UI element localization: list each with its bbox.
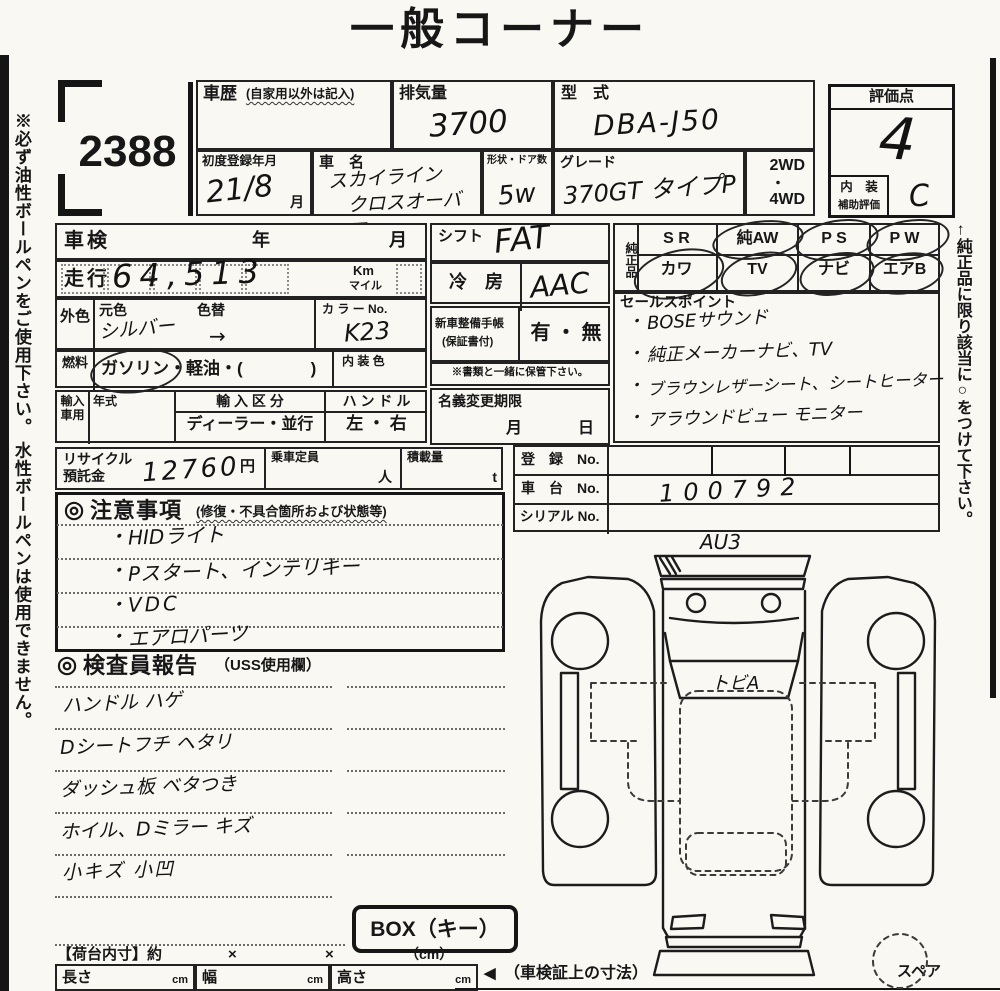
displacement-label: 排気量 (399, 85, 447, 103)
cautions-label: 注意事項 (90, 499, 182, 523)
shift-label: シフト (438, 229, 483, 246)
grade-value: 370GT タイプP (562, 172, 737, 209)
rear-hatch-dashed (686, 833, 786, 875)
height-unit: cm (455, 974, 471, 986)
front-damage-note: AU3 (698, 533, 741, 554)
width-unit: cm (307, 974, 323, 986)
right-margin-note: ←純正品に限り該当に○をつけて下さい。 (953, 222, 970, 542)
keep-note: ※書類と一緒に保管下さい。 (432, 364, 608, 379)
import-label: 輸入車用 (57, 392, 90, 444)
sales-point-item: BOSEサウンド (647, 309, 769, 334)
chassis-no-label: 車 台 No. (521, 481, 600, 496)
tail-light (671, 915, 705, 929)
handle-label: ハ ン ド ル (326, 392, 427, 413)
front-cowl (661, 579, 805, 589)
import-class-label: 輸 入 区 分 (176, 392, 324, 413)
washer-nozzle (762, 594, 780, 612)
dotted-rule (55, 770, 332, 772)
score-value: 4 (877, 108, 918, 171)
dotted-rule (347, 728, 505, 730)
cargo-unit: （cm） (405, 947, 453, 962)
capacity-label: 乗車定員 (271, 451, 319, 464)
interior-color-label: 内 装 色 (342, 355, 385, 368)
interior-sublabel: 補助評価 (831, 200, 887, 212)
sales-point-item: 純正メーカーナビ、TV (647, 341, 833, 366)
ac-cell: 冷 房 AAC (430, 262, 610, 304)
bullet: ・ (108, 628, 127, 648)
mileage-value: 64,513 (111, 255, 266, 294)
inspector-item: 小キズ 小凹 (62, 860, 176, 884)
history-note: (自家用以外は記入) (246, 88, 354, 102)
mileage-digit-box (61, 264, 105, 294)
rear-bumper-band (666, 937, 802, 947)
spare-tire-circle (873, 934, 927, 988)
first-registration-value: 21/8 (205, 171, 275, 209)
transfer-month: 月 (506, 420, 522, 438)
drive-cell: 2WD ・ 4WD (745, 150, 815, 216)
ac-value: AAC (529, 267, 591, 303)
handle-value: 左 ・ 右 (326, 413, 427, 434)
bullet: ・ (627, 410, 644, 428)
bullet: ・ (627, 378, 644, 396)
auction-sheet: ※必ず油性ボールペンをご使用下さい。 水性ボールペンは使用できません。 ←純正品… (0, 0, 1000, 991)
reg-divider (849, 447, 851, 476)
interior-label: 内 装 (831, 181, 887, 195)
import-year-label: 年式 (93, 395, 117, 408)
hood-line (670, 618, 798, 623)
transfer-cell: 名義変更期限 月 日 (430, 388, 610, 445)
bullet: ・ (108, 528, 127, 548)
bullet: ・ (108, 596, 127, 616)
ac-label: 冷 房 (432, 264, 522, 311)
caution-item: VDC (128, 593, 181, 616)
shift-value: FAT (492, 220, 551, 259)
drive-dot: ・ (771, 176, 785, 191)
car-damage-diagram: AU3 トビA (528, 533, 948, 991)
cautions-mark: ◎ (64, 497, 84, 522)
height-label: 高さ (337, 970, 367, 987)
shift-cell: シフト FAT (430, 223, 610, 262)
model-code-cell: 型 式 DBA-J50 (553, 80, 815, 150)
keep-note-strip: ※書類と一緒に保管下さい。 (430, 362, 610, 386)
floor-dashed-lines (628, 743, 848, 801)
shape-doors-cell: 形状・ドア数 5w (482, 150, 553, 216)
displacement-cell: 排気量 3700 (392, 80, 553, 150)
load-unit: t (492, 470, 497, 485)
model-code-value: DBA-J50 (592, 105, 721, 141)
width-label: 幅 (202, 970, 217, 987)
shaken-month: 月 (389, 231, 407, 251)
inspector-label: 検査員報告 (83, 654, 198, 678)
drive-4wd: 4WD (769, 191, 805, 209)
load-label: 積載量 (407, 451, 443, 464)
color-row: 外色 元色 色替 カ ラ ー No. K23 シルバー → (55, 298, 427, 350)
first-registration-unit: 月 (290, 195, 304, 210)
transfer-label: 名義変更期限 (438, 394, 522, 409)
box-key-label: BOX（キー） (356, 909, 514, 941)
history-cell: 車歴 (自家用以外は記入) (196, 80, 392, 150)
color-no-value: K23 (343, 318, 391, 346)
reg-divider (784, 447, 786, 476)
mileage-unit-mile: マイル (349, 280, 382, 292)
cargo-label: 【荷台内寸】約 (57, 947, 162, 964)
color-arrow: → (209, 326, 226, 347)
model-code-label: 型 式 (561, 85, 609, 103)
left-rear-wheel (552, 791, 608, 847)
color-no-label: カ ラ ー No. (322, 303, 387, 316)
recycle-row: リサイクル 預託金 12760 円 乗車定員 人 積載量 t (55, 447, 503, 490)
reg-no-value-area (609, 447, 938, 476)
lot-number: 2388 (70, 128, 185, 176)
left-arrow-icon: ◀ (484, 966, 496, 983)
color-change-label: 色替 (197, 303, 225, 318)
cargo-times: × (325, 947, 334, 964)
right-front-wheel (868, 613, 924, 669)
color-label: 外色 (57, 300, 95, 356)
dotted-rule (347, 686, 505, 688)
dotted-rule (55, 854, 332, 856)
displacement-value: 3700 (428, 105, 509, 143)
chassis-no-value: 100792 (658, 474, 805, 507)
width-cell: 幅 cm (195, 964, 330, 991)
service-book-value: 有 ・ 無 (520, 322, 612, 344)
car-name-line1: スカイライン (327, 165, 442, 193)
registration-table: 登 録 No. 車 台 No. 100792 シリアル No. (513, 445, 940, 532)
lot-right-rule (188, 82, 193, 216)
cargo-times: × (228, 947, 237, 964)
first-registration-cell: 初度登録年月 21/8 月 (196, 150, 312, 216)
washer-nozzle (687, 594, 705, 612)
recycle-unit: 円 (240, 459, 255, 476)
right-rear-wheel (868, 791, 924, 847)
inspector-mark: ◎ (57, 652, 77, 677)
cautions-sublabel: (修復・不具合箇所および状態等) (196, 505, 387, 519)
left-rocker (561, 673, 578, 789)
left-margin-note: ※必ず油性ボールペンをご使用下さい。 水性ボールペンは使用できません。 (12, 112, 30, 792)
serial-no-label: シリアル No. (520, 510, 599, 525)
grade-label: グレード (560, 155, 616, 170)
dotted-rule (55, 728, 332, 730)
tail-light (771, 915, 805, 929)
reg-divider (711, 447, 713, 476)
bullet: ・ (108, 562, 127, 582)
color-original-label: 元色 (99, 303, 127, 318)
length-cell: 長さ cm (55, 964, 195, 991)
dotted-rule (347, 812, 505, 814)
color-value: シルバー (98, 317, 175, 343)
right-rocker (898, 673, 915, 789)
bullet: ・ (627, 346, 644, 364)
reg-no-label: 登 録 No. (521, 452, 600, 467)
shaken-label: 車検 (64, 230, 110, 252)
mileage-unit-km: Km (353, 264, 374, 278)
left-front-wheel (552, 613, 608, 669)
rear-bumper (654, 951, 814, 975)
sales-point-item: アラウンドビュー モニター (647, 404, 863, 430)
shape-doors-label: 形状・ドア数 (487, 155, 547, 166)
drive-2wd: 2WD (769, 157, 805, 175)
import-row: 輸入車用 年式 輸 入 区 分 ディーラー・並行 ハ ン ド ル 左 ・ 右 (55, 390, 427, 443)
import-class-value: ディーラー・並行 (176, 413, 324, 434)
service-book-label1: 新車整備手帳 (435, 318, 504, 331)
mileage-digit-box (396, 264, 422, 294)
cabin-dashed (680, 691, 792, 871)
left-edge-bar (0, 55, 9, 991)
length-unit: cm (172, 974, 188, 986)
bullet: ・ (627, 314, 644, 332)
shaken-year: 年 (252, 231, 270, 251)
sales-point-item: ブラウンレザーシート、シートヒーター (647, 371, 944, 399)
lot-bracket-tl-v (58, 80, 65, 122)
recycle-value: 12760 (141, 454, 240, 488)
fuel-label: 燃料 (57, 352, 95, 390)
interior-score-value: C (907, 179, 931, 213)
capacity-unit: 人 (378, 470, 392, 485)
height-cell: 高さ cm (330, 964, 478, 991)
car-name-cell: 車 名 スカイライン クロスオーバー (312, 150, 482, 216)
history-label: 車歴 (203, 85, 237, 104)
caution-item: HIDライト (128, 524, 225, 548)
dotted-rule (347, 770, 505, 772)
dotted-rule (55, 896, 332, 898)
dotted-rule (55, 812, 332, 814)
windshield-damage-note: トビA (711, 673, 759, 694)
service-book-cell: 新車整備手帳 (保証書付) 有 ・ 無 (430, 306, 610, 362)
lot-bracket-bl-v (58, 174, 65, 216)
service-book-label2: (保証書付) (442, 336, 493, 348)
right-edge-bar (990, 58, 996, 698)
recycle-label1: リサイクル (63, 452, 132, 467)
dotted-rule (347, 854, 505, 856)
score-box: 評価点 4 内 装 補助評価 C (828, 84, 955, 218)
dotted-rule (55, 686, 332, 688)
first-registration-label: 初度登録年月 (202, 155, 277, 169)
sales-points-box: セールスポイント ・ BOSEサウンド ・ 純正メーカーナビ、TV ・ ブラウン… (613, 292, 940, 443)
page-title: 一般コーナー (0, 6, 1000, 54)
grade-cell: グレード 370GT タイプP (553, 150, 745, 216)
recycle-label2: 預託金 (63, 469, 105, 484)
shape-doors-value: 5w (497, 180, 537, 210)
transfer-day: 日 (578, 420, 594, 438)
length-label: 長さ (62, 970, 92, 987)
inspector-sublabel: （USS使用欄） (215, 658, 321, 675)
